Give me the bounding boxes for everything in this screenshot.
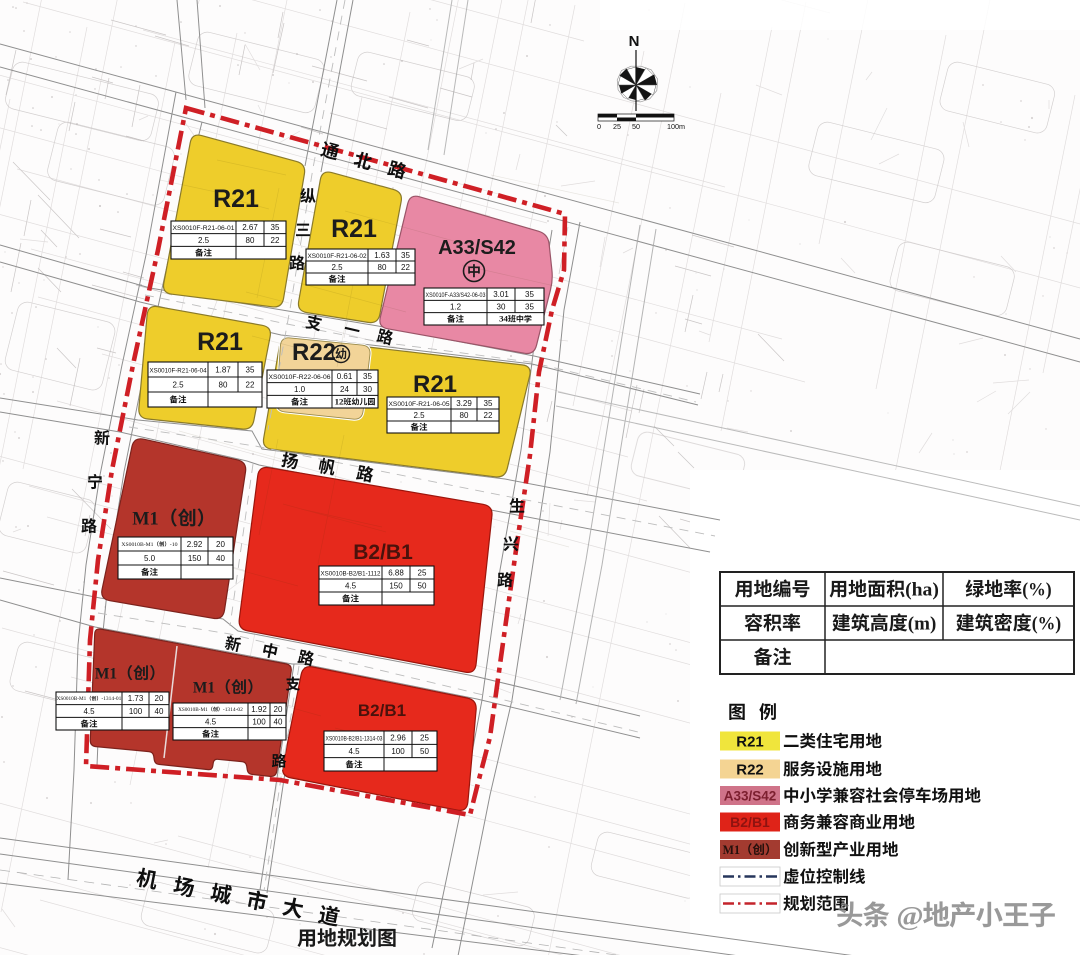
svg-text:A33/S42: A33/S42: [438, 237, 516, 259]
svg-text:A33/S42: A33/S42: [724, 788, 777, 803]
svg-text:35: 35: [525, 290, 534, 299]
svg-text:R21: R21: [197, 328, 243, 356]
svg-text:20: 20: [274, 705, 283, 714]
svg-text:M1: M1: [95, 666, 117, 683]
svg-text:22: 22: [246, 380, 255, 389]
svg-text:40: 40: [274, 717, 283, 726]
svg-text:35: 35: [246, 365, 255, 374]
svg-text:M1: M1: [132, 509, 158, 530]
svg-text:25: 25: [613, 122, 621, 131]
svg-text:(ha): (ha): [905, 580, 939, 601]
svg-text:80: 80: [219, 380, 228, 389]
svg-text:2.5: 2.5: [198, 236, 210, 245]
svg-text:R21: R21: [413, 371, 457, 398]
svg-text:22: 22: [271, 236, 280, 245]
svg-text:R21: R21: [736, 733, 764, 750]
svg-text:80: 80: [460, 411, 469, 420]
svg-text:12: 12: [335, 398, 344, 407]
svg-text:30: 30: [497, 302, 506, 311]
svg-text:R21: R21: [213, 185, 259, 213]
svg-text:R22: R22: [292, 339, 336, 366]
svg-text:XS0010B-M1: XS0010B-M1: [178, 708, 208, 713]
svg-text:40: 40: [155, 707, 164, 716]
svg-text:B2/B1: B2/B1: [358, 701, 406, 720]
svg-text:XS0010F-R21-06-01: XS0010F-R21-06-01: [173, 225, 235, 232]
svg-text:100: 100: [252, 717, 266, 726]
svg-text:20: 20: [216, 540, 225, 549]
svg-text:B2/B1: B2/B1: [353, 541, 413, 564]
svg-text:-1314-01: -1314-01: [101, 697, 122, 702]
svg-text:2.5: 2.5: [172, 380, 184, 389]
svg-text:1.92: 1.92: [251, 705, 267, 714]
svg-text:150: 150: [389, 581, 403, 590]
svg-text:XS0010F-R21-06-02: XS0010F-R21-06-02: [308, 253, 367, 260]
svg-text:2.67: 2.67: [242, 223, 258, 232]
svg-text:100m: 100m: [667, 122, 685, 131]
svg-text:80: 80: [378, 263, 387, 272]
svg-text:XS0010B-M1: XS0010B-M1: [121, 542, 153, 548]
svg-text:20: 20: [155, 694, 164, 703]
svg-text:4.5: 4.5: [345, 581, 357, 590]
svg-text:2.96: 2.96: [390, 734, 406, 743]
svg-text:50: 50: [418, 581, 427, 590]
svg-text:50: 50: [420, 747, 429, 756]
svg-text:4.5: 4.5: [348, 747, 360, 756]
svg-text:4.5: 4.5: [83, 707, 95, 716]
svg-text:1.87: 1.87: [215, 365, 231, 374]
svg-text:1.0: 1.0: [294, 385, 306, 394]
svg-text:1.73: 1.73: [128, 694, 144, 703]
svg-text:M1: M1: [723, 843, 740, 857]
svg-text:R22: R22: [736, 761, 764, 778]
svg-text:34: 34: [499, 315, 508, 324]
svg-text:0.61: 0.61: [337, 372, 353, 381]
svg-text:XS0010F-R21-06-05: XS0010F-R21-06-05: [389, 401, 450, 408]
svg-text:2.5: 2.5: [413, 411, 425, 420]
svg-text:25: 25: [420, 734, 429, 743]
svg-text:3.01: 3.01: [493, 290, 509, 299]
svg-text:5.0: 5.0: [144, 554, 156, 563]
svg-text:XS0010B-B2/B1-1314-03: XS0010B-B2/B1-1314-03: [326, 737, 384, 743]
svg-text:(%): (%): [1032, 614, 1062, 635]
svg-text:XS0010F-A33/S42-06-03: XS0010F-A33/S42-06-03: [426, 293, 487, 299]
svg-text:22: 22: [401, 263, 410, 272]
svg-text:XS0010F-R22-06-06: XS0010F-R22-06-06: [269, 374, 331, 381]
svg-text:22: 22: [484, 411, 493, 420]
svg-text:N: N: [629, 33, 640, 50]
svg-text:150: 150: [188, 554, 202, 563]
svg-text:80: 80: [246, 236, 255, 245]
svg-text:35: 35: [271, 223, 280, 232]
svg-text:40: 40: [216, 554, 225, 563]
svg-text:(m): (m): [908, 614, 937, 635]
svg-text:2.5: 2.5: [331, 263, 343, 272]
svg-text:R21: R21: [331, 215, 377, 243]
svg-text:XS0010B-M1: XS0010B-M1: [57, 697, 87, 702]
svg-text:XS0010F-R21-06-04: XS0010F-R21-06-04: [150, 367, 207, 374]
svg-text:50: 50: [632, 122, 640, 131]
svg-text:6.88: 6.88: [388, 568, 404, 577]
svg-text:35: 35: [484, 399, 493, 408]
svg-text:35: 35: [525, 302, 534, 311]
svg-text:4.5: 4.5: [205, 717, 217, 726]
svg-text:(%): (%): [1022, 580, 1051, 601]
svg-text:XS0010B-B2/B1-1112: XS0010B-B2/B1-1112: [321, 570, 381, 577]
svg-text:-10: -10: [170, 542, 178, 548]
svg-text:-1314-02: -1314-02: [223, 708, 244, 713]
svg-text:1.63: 1.63: [374, 251, 390, 260]
svg-text:35: 35: [363, 372, 372, 381]
svg-text:B2/B1: B2/B1: [730, 814, 770, 830]
svg-text:25: 25: [418, 568, 427, 577]
svg-text:M1: M1: [193, 680, 215, 697]
svg-text:2.92: 2.92: [187, 540, 203, 549]
svg-text:0: 0: [597, 122, 601, 131]
svg-text:1.2: 1.2: [450, 302, 462, 311]
svg-text:30: 30: [363, 385, 372, 394]
svg-text:24: 24: [340, 385, 349, 394]
svg-text:3.29: 3.29: [456, 399, 472, 408]
svg-text:@: @: [889, 900, 924, 931]
svg-text:100: 100: [129, 707, 143, 716]
svg-text:35: 35: [401, 251, 410, 260]
svg-text:100: 100: [391, 747, 405, 756]
